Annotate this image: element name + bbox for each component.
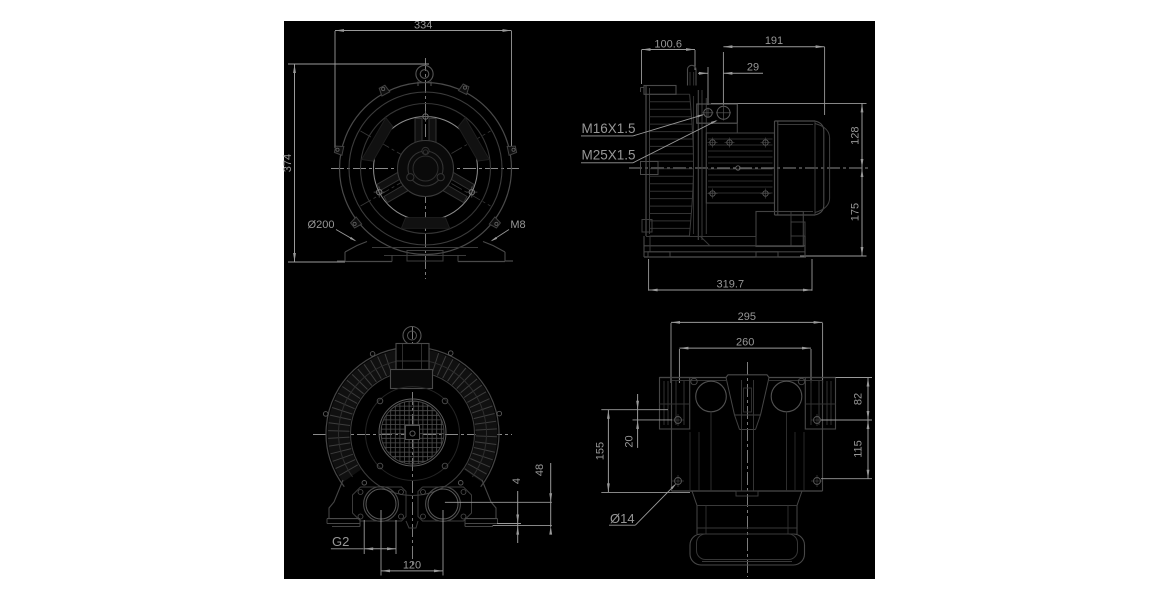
svg-text:100.6: 100.6 xyxy=(654,39,682,51)
svg-text:48: 48 xyxy=(534,464,546,476)
svg-text:G2: G2 xyxy=(332,534,349,549)
svg-text:295: 295 xyxy=(738,311,756,323)
svg-text:M16X1.5: M16X1.5 xyxy=(582,121,636,136)
svg-text:82: 82 xyxy=(853,393,865,405)
svg-text:155: 155 xyxy=(595,442,607,460)
svg-text:334: 334 xyxy=(414,20,432,32)
svg-text:120: 120 xyxy=(403,560,421,572)
svg-text:175: 175 xyxy=(850,203,862,221)
svg-text:M25X1.5: M25X1.5 xyxy=(582,148,636,163)
svg-text:29: 29 xyxy=(747,62,759,74)
svg-text:128: 128 xyxy=(850,127,862,145)
svg-text:M8: M8 xyxy=(510,219,525,231)
svg-text:4: 4 xyxy=(511,478,523,484)
svg-text:374: 374 xyxy=(282,154,294,172)
svg-text:Ø200: Ø200 xyxy=(308,219,335,231)
svg-text:260: 260 xyxy=(736,337,754,349)
svg-text:Ø14: Ø14 xyxy=(610,511,635,526)
svg-text:319.7: 319.7 xyxy=(717,279,745,291)
svg-text:191: 191 xyxy=(765,35,783,47)
svg-text:115: 115 xyxy=(853,440,865,458)
svg-text:20: 20 xyxy=(624,435,636,447)
